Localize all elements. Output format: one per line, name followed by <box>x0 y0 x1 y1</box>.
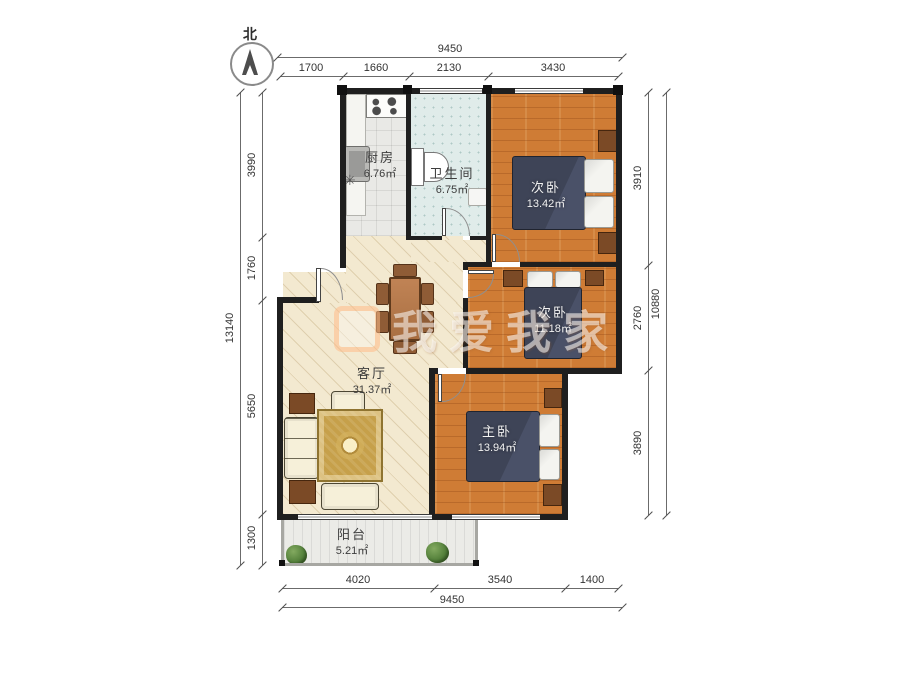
wall-right <box>616 88 622 374</box>
dim-line-bottom-total <box>282 607 622 608</box>
master-bedroom-label: 主卧 13.94㎡ <box>447 424 547 455</box>
dim-right-total: 10880 <box>650 289 662 320</box>
dim-top-seg-0: 1700 <box>299 62 323 74</box>
dim-top-seg-2: 2130 <box>437 62 461 74</box>
dining-chair-top <box>393 264 417 277</box>
bed-mid-pillow-2 <box>555 271 581 288</box>
bedroom-top-label: 次卧 13.42㎡ <box>496 180 596 211</box>
dining-chair-bottom <box>393 341 417 354</box>
balcony-wall-bottom <box>281 563 478 566</box>
bedroom-top-window <box>515 88 583 94</box>
loveseat <box>321 483 379 510</box>
bed-mid-pillow-1 <box>527 271 553 288</box>
bed-mid-nightstand-1 <box>503 270 523 287</box>
dim-bottom-seg-2: 1400 <box>580 574 604 586</box>
stove <box>366 94 408 118</box>
wall-entry-stub <box>277 297 319 303</box>
wall-bath-bottom-a <box>406 236 442 240</box>
dim-top-seg-1: 1660 <box>364 62 388 74</box>
bed-top-nightstand-2 <box>598 232 618 254</box>
side-table-bottom <box>289 480 316 504</box>
balcony-slider-window <box>298 514 432 520</box>
dim-line-top-total <box>277 57 622 58</box>
dim-left-seg-3: 1300 <box>246 526 258 550</box>
dining-chair-left-1 <box>376 283 389 305</box>
dim-bottom-seg-0: 4020 <box>346 574 370 586</box>
balcony-corner-block <box>473 560 479 566</box>
dim-right-seg-2: 3890 <box>632 431 644 455</box>
wall-step <box>562 368 622 374</box>
dim-left-seg-0: 3990 <box>246 153 258 177</box>
dim-right-seg-0: 3910 <box>632 166 644 190</box>
dim-line-right-total <box>666 92 667 515</box>
balcony-corner-block <box>279 560 285 566</box>
bed-master-nightstand-1 <box>544 388 562 408</box>
wall-master-top-b <box>466 368 562 374</box>
dining-chair-right-1 <box>421 283 434 305</box>
balcony-label: 阳台 5.21㎡ <box>302 527 402 558</box>
rug <box>317 409 383 482</box>
master-window <box>452 514 540 520</box>
dim-bottom-seg-1: 3540 <box>488 574 512 586</box>
dim-line-left-total <box>240 92 241 565</box>
wall-bed2-left-b <box>463 298 468 368</box>
plant-right <box>426 542 449 563</box>
dim-line-bottom-segments <box>282 588 618 589</box>
corner-block <box>613 85 623 95</box>
corner-block <box>337 85 347 95</box>
floorplan-canvas: ✳ <box>0 0 900 675</box>
dim-line-left-segments <box>262 92 263 565</box>
bed-master-nightstand-2 <box>543 484 562 506</box>
dining-chair-right-2 <box>421 311 434 333</box>
wall-left <box>277 297 283 520</box>
wall-bed1-bottom-b <box>520 262 622 267</box>
sofa-three-seat <box>284 417 319 479</box>
dim-line-right-segments <box>648 92 649 515</box>
corner-block <box>403 85 412 94</box>
living-room-label: 客厅 31.37㎡ <box>322 366 422 397</box>
dim-left-seg-2: 5650 <box>246 394 258 418</box>
bathroom-window <box>420 88 482 94</box>
wall-bath-bottom-b <box>470 236 491 240</box>
bed-top-nightstand-1 <box>598 130 618 152</box>
dim-left-total: 13140 <box>224 313 236 344</box>
dim-bottom-total: 9450 <box>440 594 464 606</box>
dim-left-seg-1: 1760 <box>246 256 258 280</box>
hallway-floor <box>411 240 486 262</box>
compass-north-label: 北 <box>243 24 257 44</box>
wall-master-left <box>429 368 435 514</box>
compass-arrow-notch <box>246 65 254 75</box>
dim-right-seg-1: 2760 <box>632 306 644 330</box>
bed-mid-nightstand-2 <box>585 270 604 286</box>
corner-block <box>483 85 492 94</box>
dining-table <box>389 277 421 341</box>
dim-line-top-segments <box>280 76 618 77</box>
side-table-top <box>289 393 315 414</box>
dining-chair-left-2 <box>376 311 389 333</box>
bedroom-mid-label: 次卧 11.18㎡ <box>503 305 603 336</box>
dim-top-total: 9450 <box>438 43 462 55</box>
living-room-floor-nook <box>429 303 463 368</box>
wall-bed2-left-a <box>463 262 468 270</box>
wall-master-right <box>562 368 568 520</box>
dim-top-seg-3: 3430 <box>541 62 565 74</box>
bathroom-label: 卫生间 6.75㎡ <box>402 166 502 197</box>
